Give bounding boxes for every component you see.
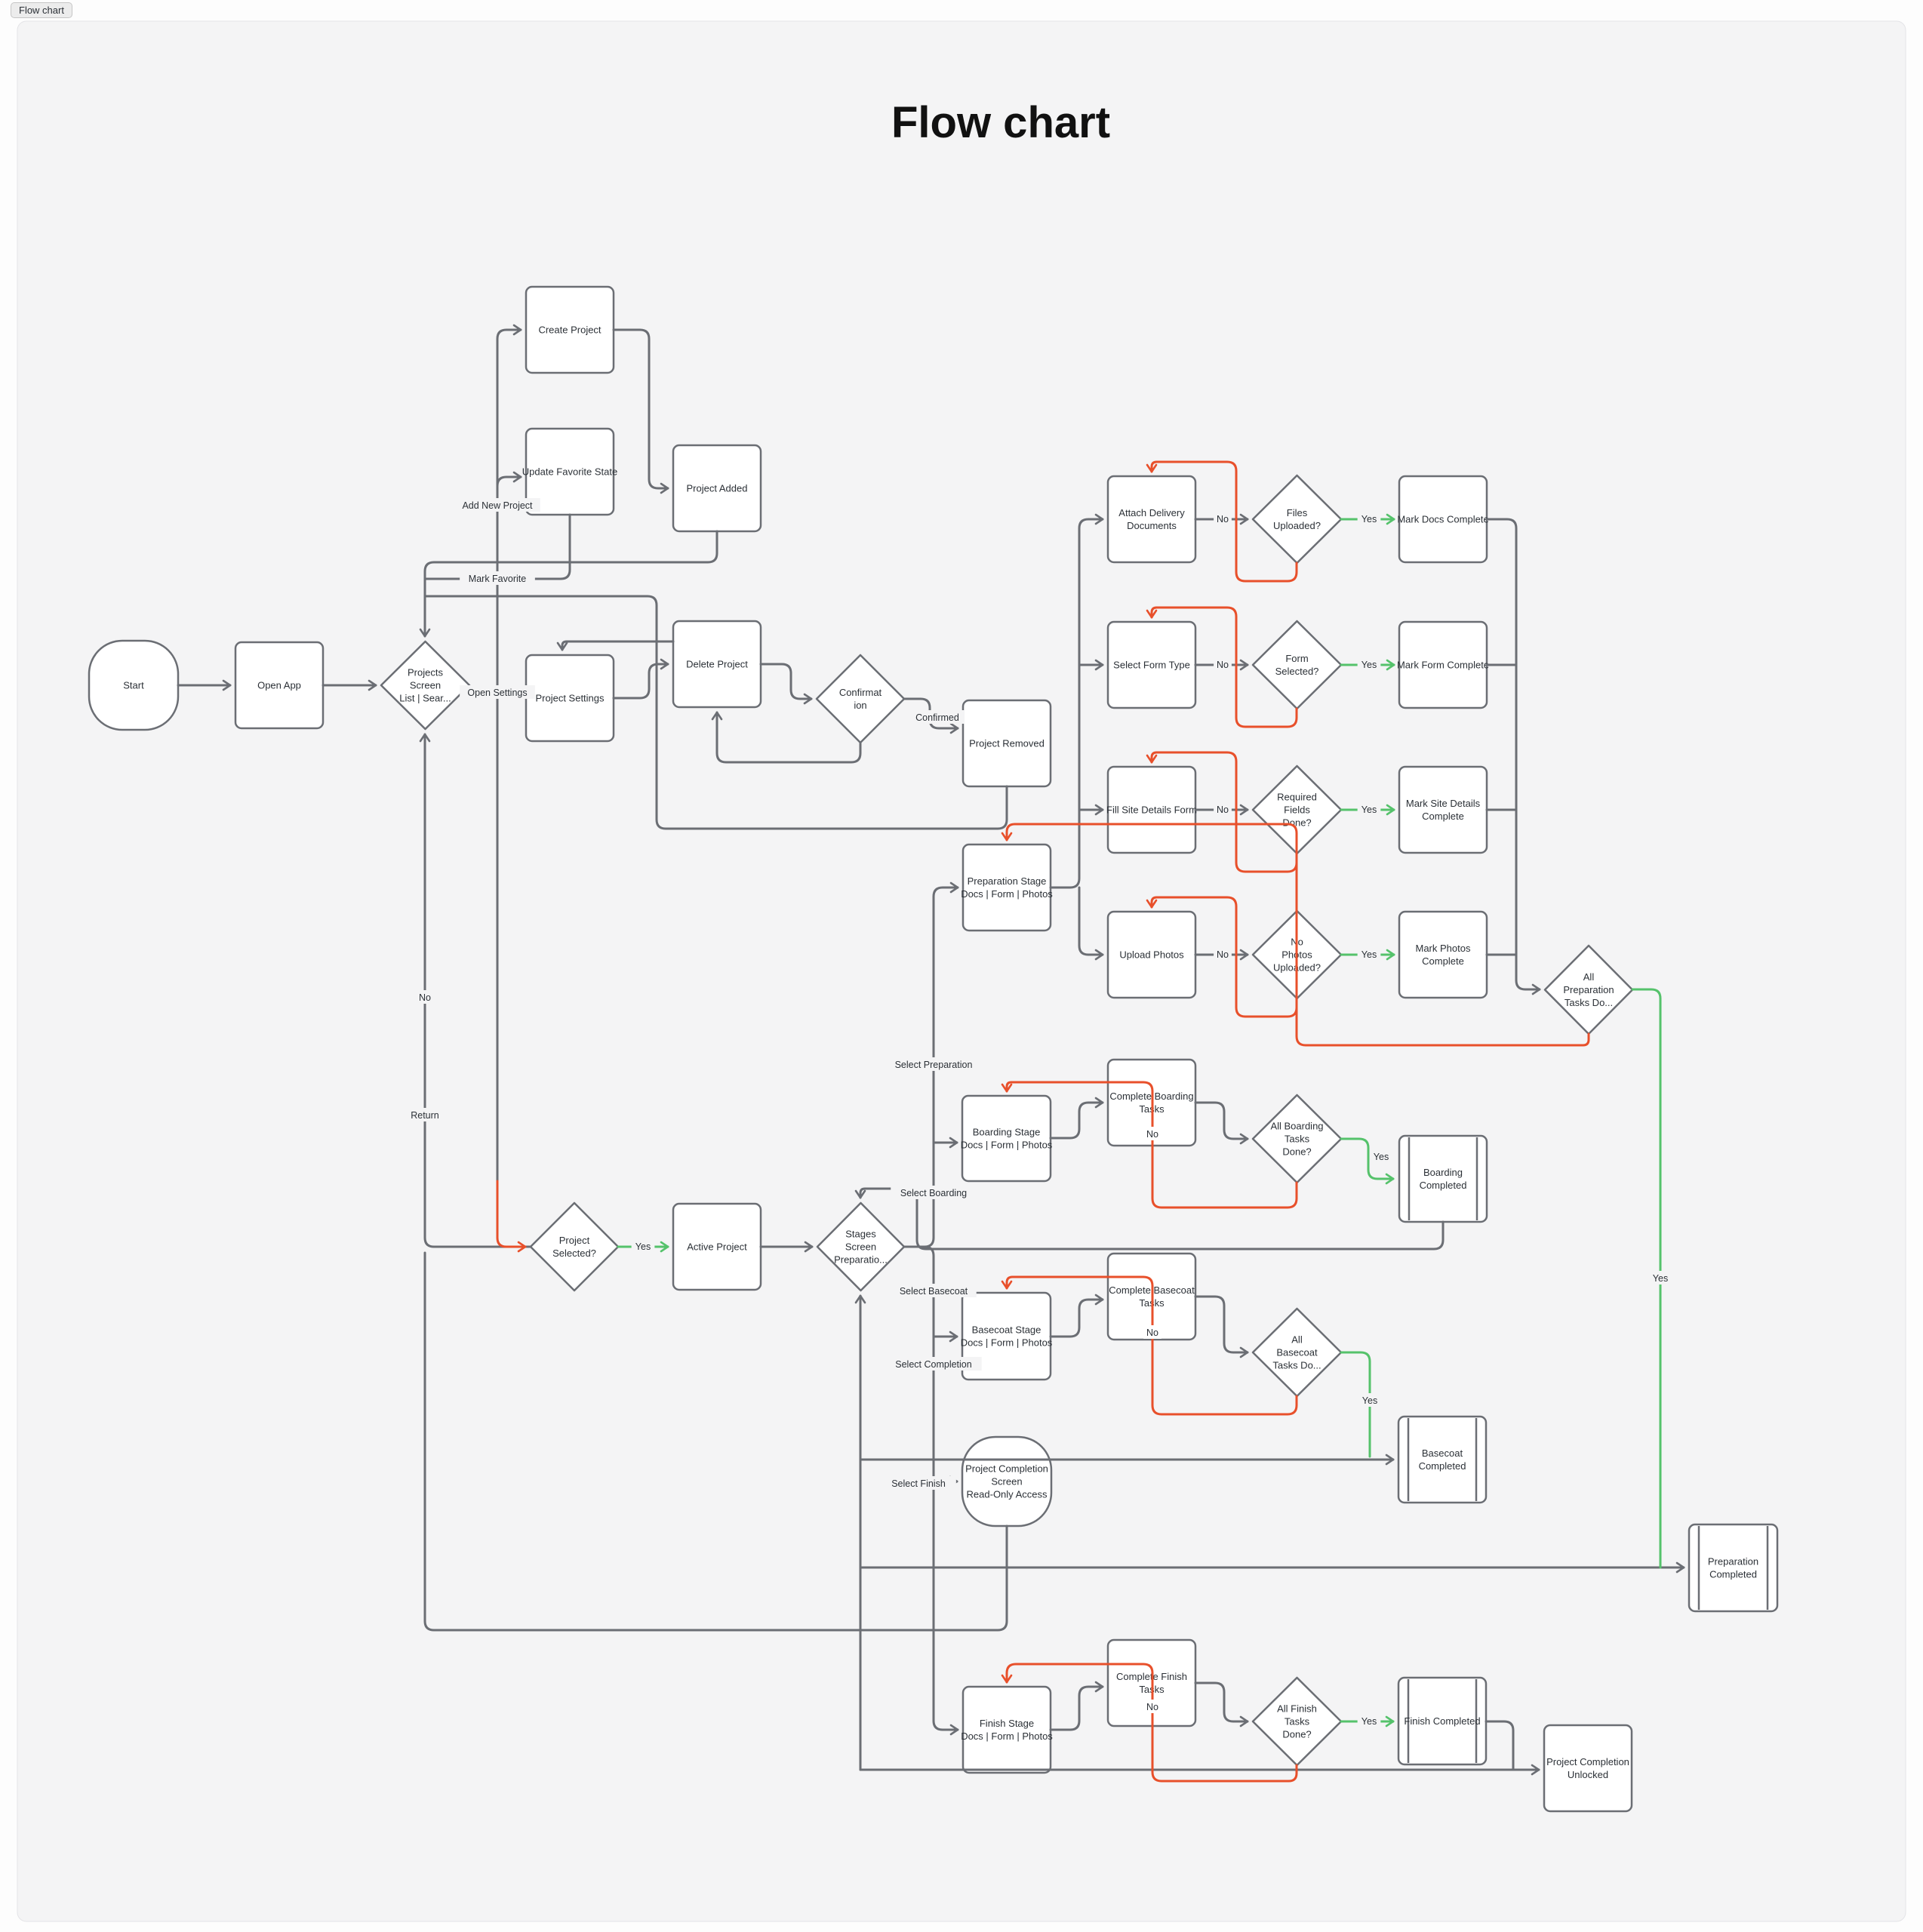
edge-label-return: Return: [411, 1110, 439, 1121]
edge-label-select-boarding: Select Boarding: [900, 1188, 967, 1198]
node-label-mark-form-complete: Mark Form Complete: [1397, 660, 1489, 671]
node-finish-completed[interactable]: Finish Completed: [1398, 1678, 1486, 1764]
node-select-form-type[interactable]: Select Form Type: [1108, 622, 1195, 708]
canvas-background: [17, 21, 1906, 1921]
node-label-select-form-type: Select Form Type: [1113, 660, 1190, 671]
node-upload-photos[interactable]: Upload Photos: [1108, 912, 1195, 998]
edge-label-mark-favorite: Mark Favorite: [469, 574, 526, 584]
edge-label-no-photos: No: [1217, 949, 1229, 960]
node-label-project-removed: Project Removed: [969, 738, 1045, 749]
edge-label-yes-form-label: Yes: [1361, 660, 1377, 670]
edge-label-no-form: No: [1217, 660, 1229, 670]
node-boarding-stage[interactable]: Boarding StageDocs | Form | Photos: [961, 1096, 1053, 1181]
edge-label-select-preparation: Select Preparation: [895, 1060, 973, 1070]
node-fill-site-details-form[interactable]: Fill Site Details Form: [1106, 767, 1197, 853]
edge-label-no-files: No: [1217, 514, 1229, 525]
node-label-open-app: Open App: [257, 680, 301, 691]
figma-board: Flow chart Flow chart StartOpen AppProje…: [0, 0, 1923, 1932]
node-project-completion-screen[interactable]: Project CompletionScreenRead-Only Access: [962, 1437, 1051, 1526]
node-basecoat-completed[interactable]: BasecoatCompleted: [1398, 1417, 1486, 1503]
edge-label-select-finish: Select Finish: [891, 1478, 946, 1489]
edge-label-yes-boarding-label: Yes: [1374, 1152, 1389, 1162]
node-preparation-completed[interactable]: PreparationCompleted: [1689, 1524, 1777, 1611]
node-project-added[interactable]: Project Added: [673, 445, 761, 531]
node-label-active-project: Active Project: [687, 1241, 747, 1253]
node-mark-form-complete[interactable]: Mark Form Complete: [1397, 622, 1489, 708]
edge-label-select-basecoat: Select Basecoat: [900, 1286, 968, 1297]
node-preparation-stage[interactable]: Preparation StageDocs | Form | Photos: [961, 844, 1053, 931]
edge-label-no-boarding: No: [1146, 1129, 1158, 1140]
node-create-project[interactable]: Create Project: [526, 287, 614, 373]
node-label-finish-completed: Finish Completed: [1404, 1715, 1480, 1727]
node-project-removed[interactable]: Project Removed: [963, 700, 1051, 786]
edge-label-open-settings: Open Settings: [467, 688, 527, 698]
edge-label-no-required: No: [1217, 804, 1229, 815]
node-label-project-added: Project Added: [687, 483, 748, 494]
edge-label-no-basecoat: No: [1146, 1327, 1158, 1338]
node-project-settings[interactable]: Project Settings: [526, 655, 614, 741]
node-project-completion-unlocked[interactable]: Project CompletionUnlocked: [1544, 1725, 1632, 1811]
node-active-project[interactable]: Active Project: [673, 1204, 761, 1290]
edge-label-no-finish: No: [1146, 1702, 1158, 1712]
node-open-app[interactable]: Open App: [235, 642, 323, 728]
node-label-mark-docs-complete: Mark Docs Complete: [1397, 514, 1488, 525]
node-label-start: Start: [123, 680, 144, 691]
edge-label-yes-photos-label: Yes: [1361, 949, 1377, 960]
edge-label-yes-finish-label: Yes: [1361, 1716, 1377, 1727]
node-mark-docs-complete[interactable]: Mark Docs Complete: [1397, 476, 1488, 562]
edge-label-add-new-project: Add New Project: [462, 500, 533, 511]
node-attach-delivery-documents[interactable]: Attach DeliveryDocuments: [1108, 476, 1195, 562]
edge-label-confirmed: Confirmed: [915, 712, 959, 723]
node-label-project-settings: Project Settings: [535, 693, 605, 704]
edge-label-yes-files-label: Yes: [1361, 514, 1377, 525]
node-label-update-favorite-state: Update Favorite State: [522, 466, 617, 478]
edge-label-yes-selected-label: Yes: [635, 1241, 651, 1252]
edge-label-no-left: No: [419, 992, 431, 1003]
node-finish-stage[interactable]: Finish StageDocs | Form | Photos: [961, 1687, 1053, 1773]
node-label-create-project: Create Project: [538, 325, 601, 336]
node-delete-project[interactable]: Delete Project: [673, 621, 761, 707]
edge-label-select-completion: Select Completion: [895, 1359, 971, 1370]
node-mark-site-details-complete[interactable]: Mark Site DetailsComplete: [1399, 767, 1487, 853]
node-mark-photos-complete[interactable]: Mark PhotosComplete: [1399, 912, 1487, 998]
node-label-fill-site-details-form: Fill Site Details Form: [1106, 804, 1197, 816]
node-boarding-completed[interactable]: BoardingCompleted: [1399, 1136, 1487, 1222]
node-label-delete-project: Delete Project: [686, 659, 748, 670]
edge-label-yes-required-label: Yes: [1361, 804, 1377, 815]
page-title: Flow chart: [891, 98, 1110, 147]
node-start[interactable]: Start: [89, 641, 178, 730]
page-tab-badge[interactable]: Flow chart: [11, 2, 72, 18]
node-label-upload-photos: Upload Photos: [1119, 949, 1184, 961]
flowchart-canvas: Flow chart StartOpen AppProjectsScreenLi…: [0, 0, 1923, 1932]
edge-label-yes-basecoat-label: Yes: [1362, 1395, 1377, 1406]
edge-label-yes-allprep-label: Yes: [1653, 1273, 1668, 1284]
